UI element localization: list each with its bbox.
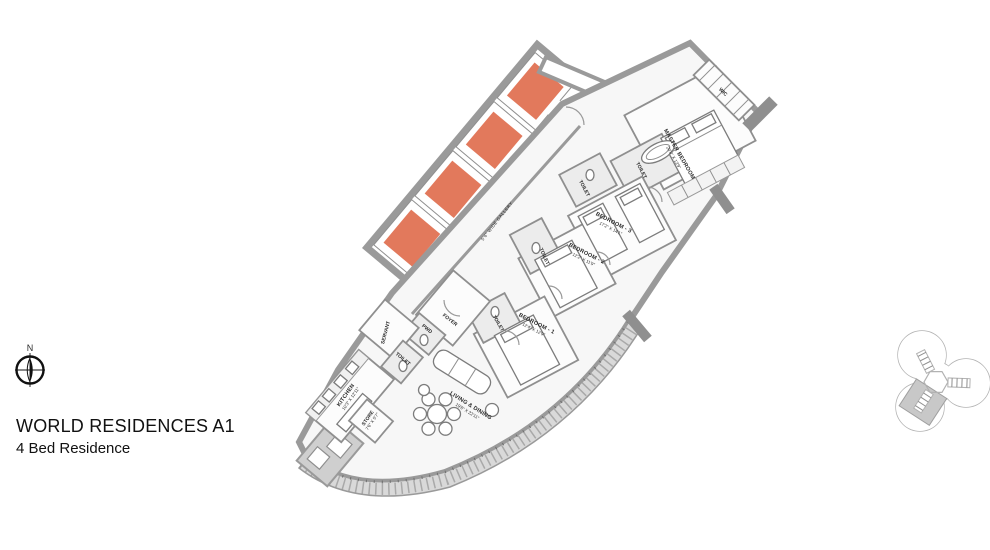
- compass: N: [15, 343, 45, 387]
- plan-subtitle: 4 Bed Residence: [16, 440, 235, 457]
- dining-chair: [439, 422, 452, 435]
- title-block: WORLD RESIDENCES A1 4 Bed Residence: [16, 416, 235, 457]
- floor-plan-canvas: LIFT LOBBY: [0, 0, 990, 550]
- dining-chair: [414, 408, 427, 421]
- keyplan-corridor: [948, 378, 970, 388]
- compass-n-label: N: [27, 343, 34, 353]
- compass-needle-filled: [30, 358, 33, 382]
- wc-fixture: [420, 335, 428, 346]
- floor-plan-page: LIFT LOBBY: [0, 0, 990, 550]
- wc-fixture: [586, 170, 594, 181]
- plan-title: WORLD RESIDENCES A1: [16, 416, 235, 437]
- key-plan: [896, 331, 990, 431]
- dining-chair: [422, 422, 435, 435]
- dining-tabletop: [428, 405, 447, 424]
- side-table: [419, 385, 430, 396]
- dining-chair: [448, 408, 461, 421]
